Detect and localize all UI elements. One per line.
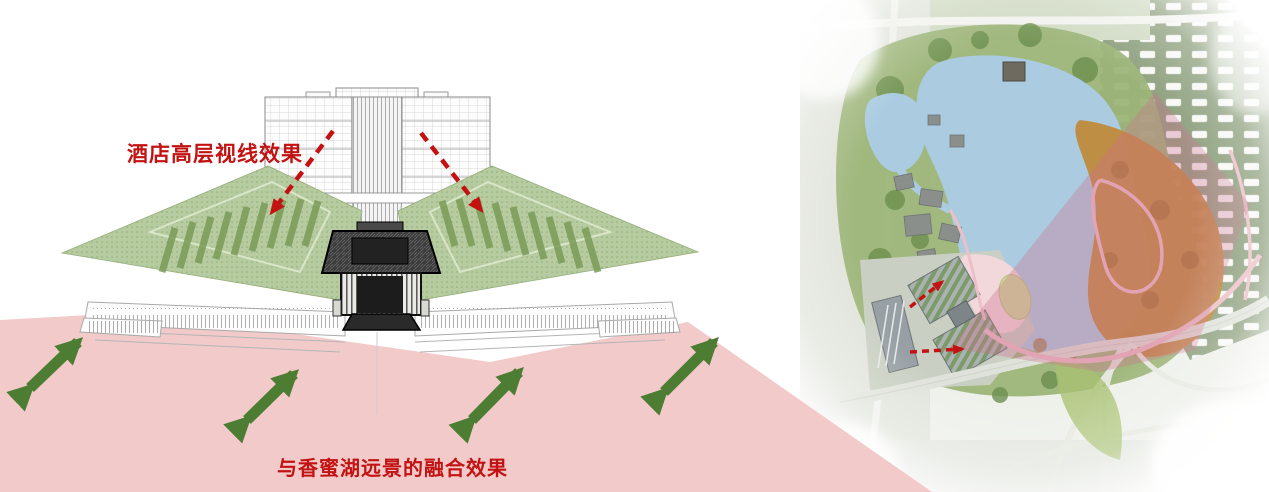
slide-canvas: 酒店高层视线效果 与香蜜湖远景的融合效果: [0, 0, 1269, 492]
pavilion-ramp: [343, 314, 420, 330]
lake-fusion-label: 与香蜜湖远景的融合效果: [277, 452, 508, 481]
hotel-sightline-label: 酒店高层视线效果: [127, 138, 303, 168]
massing-diagram: [0, 0, 940, 492]
tower-core: [352, 97, 402, 193]
island-pavilion: [1003, 62, 1025, 81]
